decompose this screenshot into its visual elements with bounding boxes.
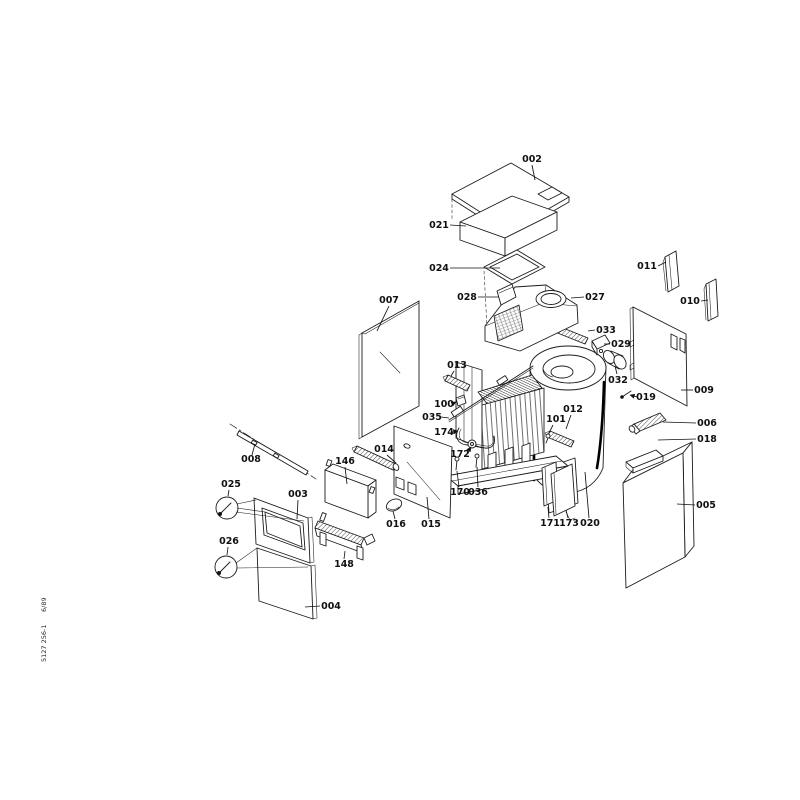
doc-edition: 6/89	[40, 597, 48, 612]
leader-line-006	[663, 422, 696, 423]
leader-line-173	[566, 510, 568, 518]
part-label-172: 172	[450, 449, 470, 460]
part-006-rail	[628, 413, 666, 434]
part-label-012: 012	[563, 404, 583, 415]
part-label-005: 005	[696, 500, 716, 511]
part-label-010: 010	[680, 296, 700, 307]
part-label-021: 021	[429, 220, 449, 231]
part-036-bolt	[475, 454, 479, 467]
part-019-screw	[620, 391, 631, 399]
part-label-036: 036	[468, 487, 488, 498]
part-label-171: 171	[540, 518, 560, 529]
leader-line-035	[441, 417, 449, 418]
part-173-plate	[551, 464, 575, 520]
leader-line-013	[451, 371, 454, 376]
part-label-018: 018	[697, 434, 717, 445]
part-label-027: 027	[585, 292, 605, 303]
part-label-013: 013	[447, 360, 467, 371]
part-label-006: 006	[697, 418, 717, 429]
part-label-007: 007	[379, 295, 399, 306]
leader-line-027	[571, 297, 584, 298]
part-label-016: 016	[386, 519, 406, 530]
part-label-025: 025	[221, 479, 241, 490]
part-label-019: 019	[636, 392, 656, 403]
part-008-top-rail	[230, 424, 316, 479]
leader-line-018	[658, 439, 696, 440]
part-label-146: 146	[335, 456, 355, 467]
leader-line-026	[227, 547, 228, 555]
part-label-029: 029	[611, 339, 631, 350]
part-label-100: 100	[434, 399, 454, 410]
part-172-grommet	[468, 440, 476, 448]
leader-line-033	[588, 330, 595, 331]
part-label-173: 173	[559, 518, 579, 529]
diagram-page: 5127 256-1 6/89 002021024028027007011010…	[0, 0, 800, 800]
part-label-003: 003	[288, 489, 308, 500]
part-label-028: 028	[457, 292, 477, 303]
part-label-032: 032	[608, 375, 628, 386]
leader-line-016	[393, 511, 395, 519]
part-label-014: 014	[374, 444, 394, 455]
part-015-inner-panel	[394, 426, 452, 518]
part-label-008: 008	[241, 454, 261, 465]
part-label-033: 033	[596, 325, 616, 336]
part-label-101: 101	[546, 414, 566, 425]
part-label-020: 020	[580, 518, 600, 529]
part-011-bracket-strip	[663, 251, 679, 292]
part-label-174: 174	[434, 427, 454, 438]
leader-line-148	[344, 551, 345, 559]
part-label-015: 015	[421, 519, 441, 530]
leader-line-011	[658, 262, 666, 266]
doc-number: 5127 256-1	[40, 625, 48, 663]
part-label-026: 026	[219, 536, 239, 547]
exploded-view-diagram: 5127 256-1 6/89 002021024028027007011010…	[0, 0, 800, 800]
part-label-009: 009	[694, 385, 714, 396]
part-007-left-side-panel	[359, 301, 419, 439]
alignment-dash-line	[484, 271, 487, 327]
part-label-011: 011	[637, 261, 657, 272]
part-label-004: 004	[321, 601, 341, 612]
part-label-002: 002	[522, 154, 542, 165]
part-024-seal-frame	[484, 250, 545, 284]
part-label-035: 035	[422, 412, 442, 423]
leader-line-025	[228, 490, 229, 496]
part-146-channel-bracket	[325, 459, 376, 518]
part-label-024: 024	[429, 263, 449, 274]
part-016-canister	[384, 497, 403, 514]
part-label-148: 148	[334, 559, 354, 570]
